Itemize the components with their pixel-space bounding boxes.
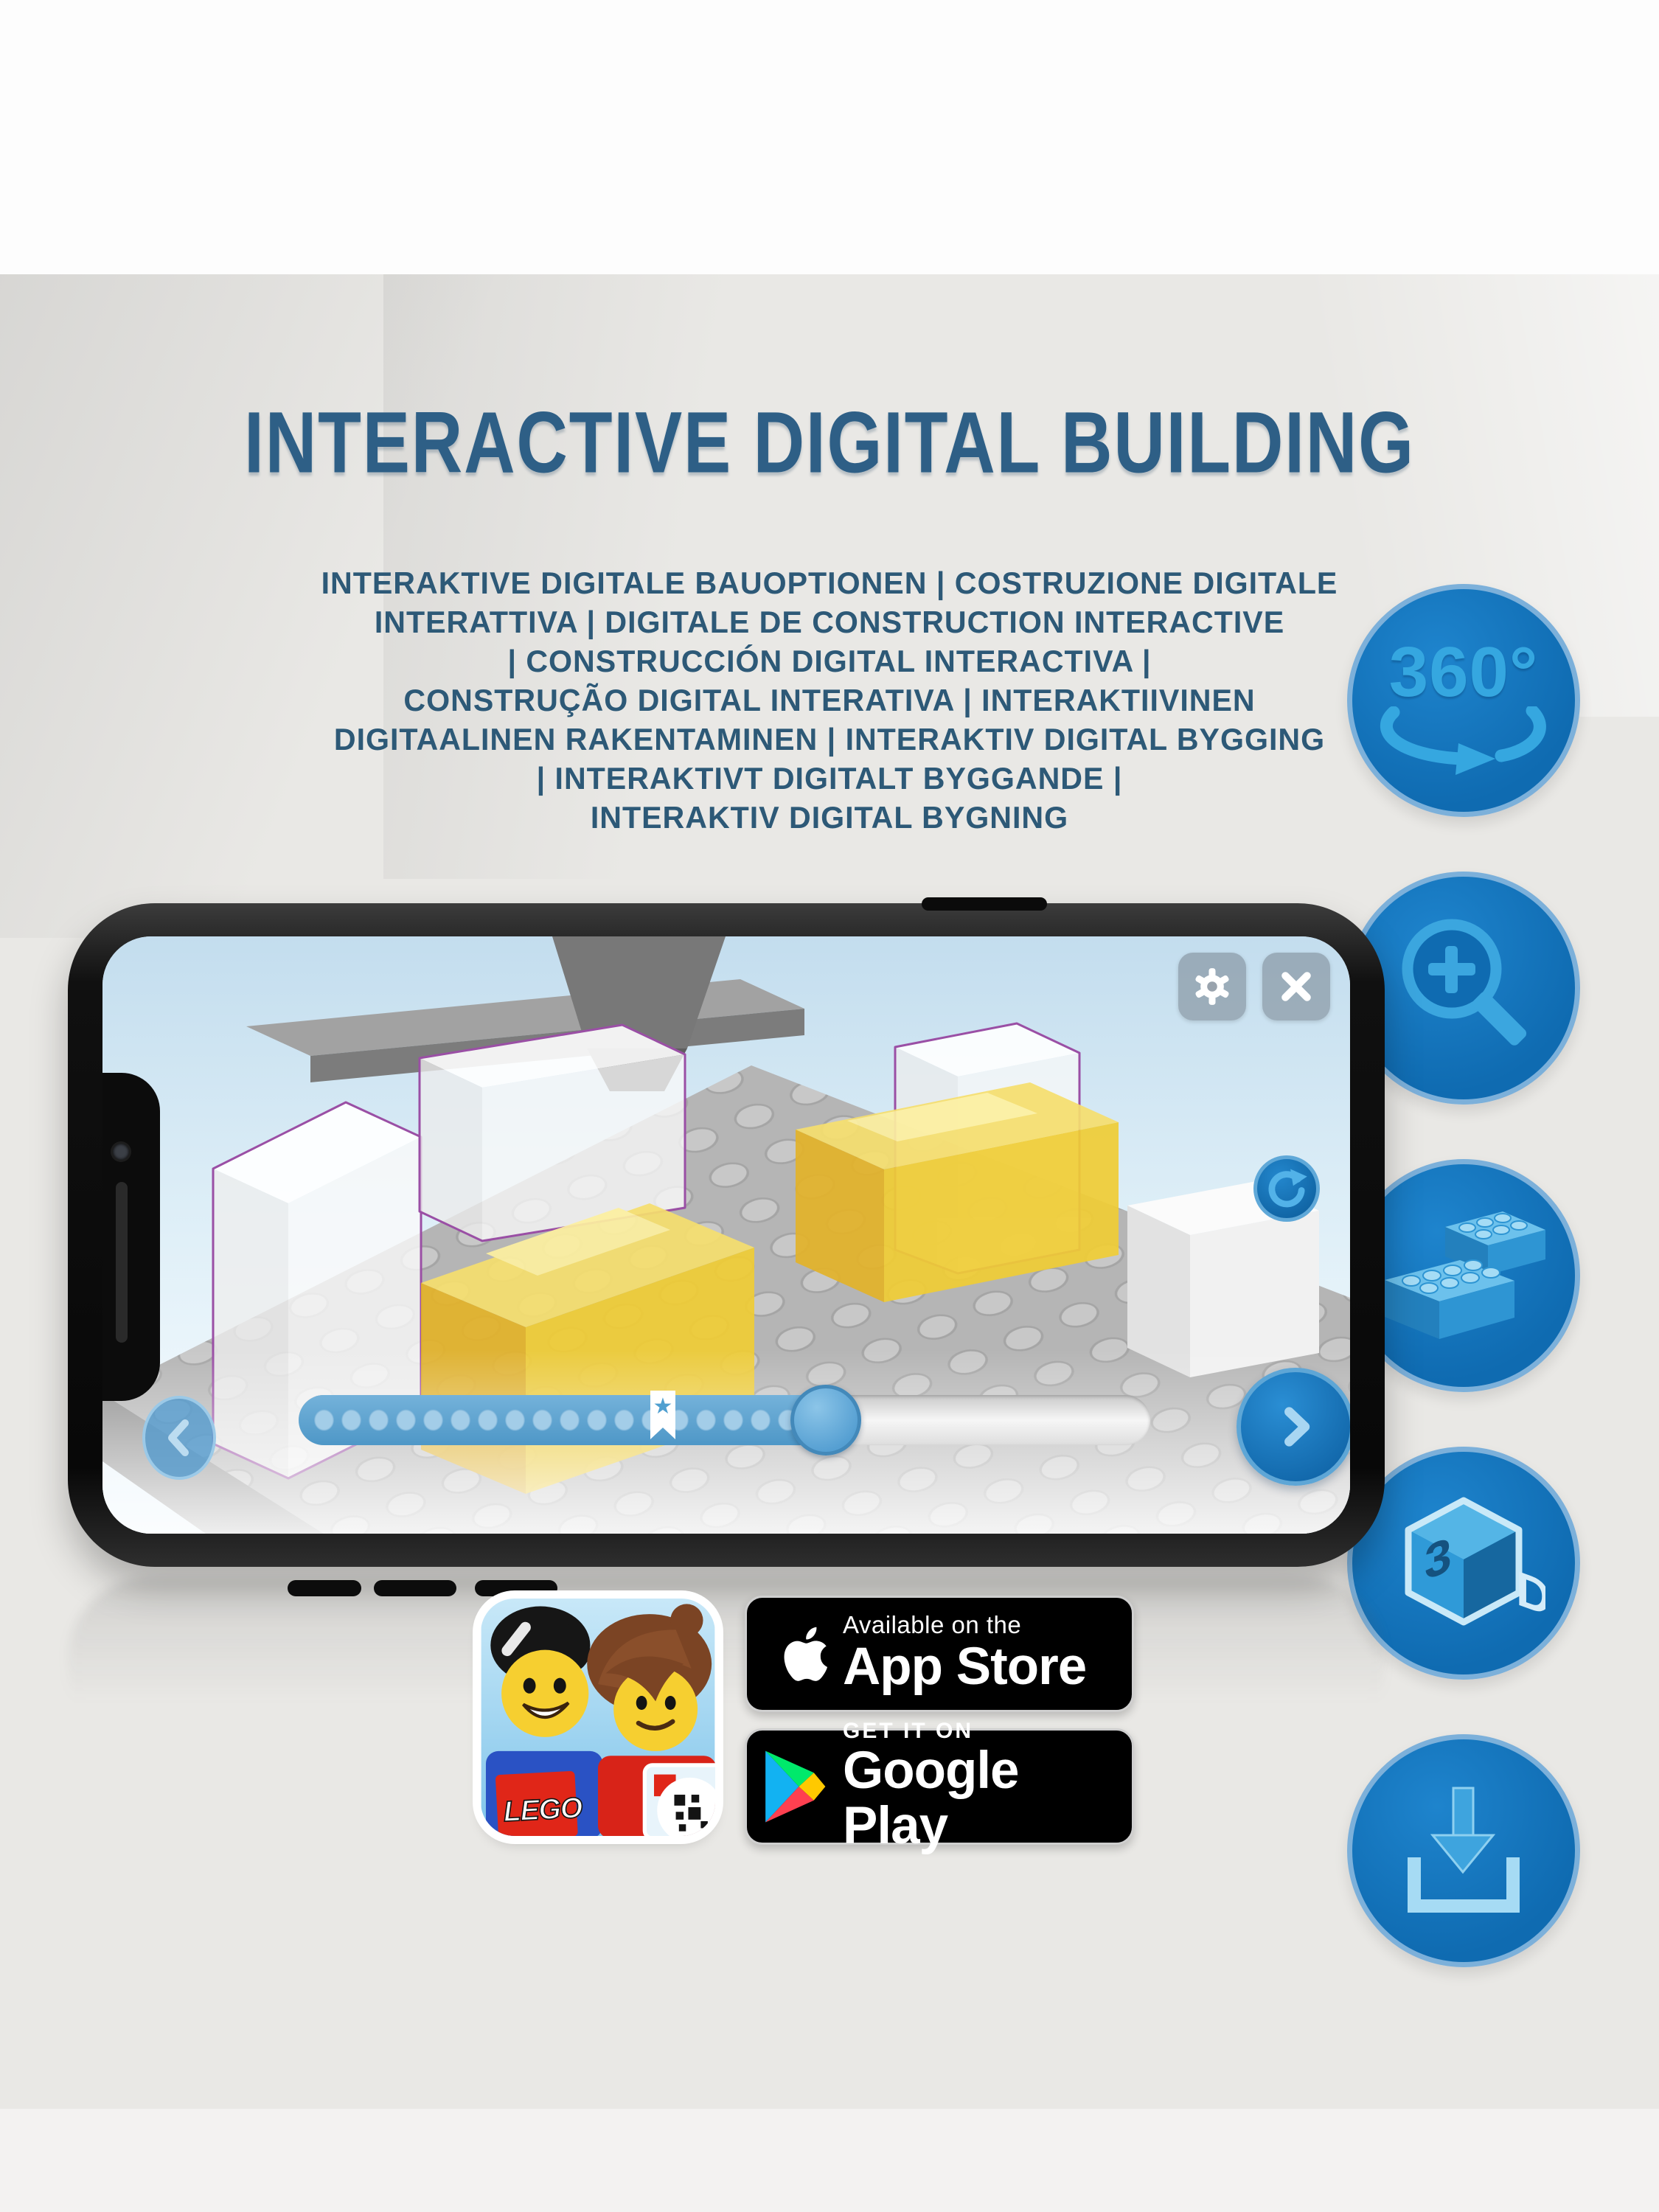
top-white-band <box>0 0 1659 274</box>
earpiece-speaker <box>116 1182 128 1343</box>
brick-icon <box>1373 1197 1554 1354</box>
rotate-icon <box>1265 1167 1308 1210</box>
phone-side-button <box>374 1580 456 1596</box>
cube-face-3: 3 <box>1425 1526 1452 1590</box>
app-store-name: App Store <box>843 1640 1124 1695</box>
poster-canvas: INTERACTIVE DIGITAL BUILDING INTERAKTIVE… <box>0 0 1659 2212</box>
lego-app-artwork: LEGO <box>481 1599 715 1836</box>
close-icon <box>1277 967 1315 1006</box>
progress-step-dots <box>310 1405 818 1435</box>
phone-side-button <box>288 1580 361 1596</box>
subtitle-line: INTERAKTIVE DIGITALE BAUOPTIONEN | COSTR… <box>17 563 1643 602</box>
rotate-view-button[interactable] <box>1253 1155 1320 1222</box>
close-button[interactable] <box>1262 953 1330 1020</box>
rotate-360-label: 360° <box>1352 632 1575 713</box>
phone-reflection <box>68 1578 1385 1755</box>
rotate-360-icon <box>1371 706 1556 784</box>
phone-notch <box>102 1073 160 1401</box>
star-icon: ★ <box>653 1394 673 1419</box>
phone-screen: ★ <box>102 936 1350 1534</box>
lego-logo: LEGO <box>503 1792 583 1829</box>
settings-button[interactable] <box>1178 953 1246 1020</box>
lego-app-icon[interactable]: LEGO <box>481 1599 715 1836</box>
progress-knob[interactable] <box>790 1385 861 1455</box>
previous-step-button[interactable] <box>142 1396 216 1480</box>
gear-icon <box>1193 967 1231 1006</box>
apple-icon <box>747 1613 843 1694</box>
feature-circle-download <box>1347 1734 1580 1967</box>
google-play-tagline: GET IT ON <box>843 1719 1124 1743</box>
app-store-badge[interactable]: Available on the App Store <box>745 1596 1134 1712</box>
progress-fill <box>299 1395 837 1445</box>
phone-side-button <box>475 1580 557 1596</box>
download-icon <box>1382 1769 1545 1933</box>
phone-frame: ★ <box>68 903 1385 1567</box>
front-camera-icon <box>113 1144 129 1160</box>
step-progress-bar[interactable]: ★ <box>299 1395 1150 1445</box>
zoom-in-icon <box>1384 908 1543 1068</box>
google-play-badge[interactable]: GET IT ON Google Play <box>745 1728 1134 1845</box>
subtitle-line: INTERAKTIV DIGITAL BYGNING <box>17 798 1643 837</box>
phone-power-button <box>922 897 1047 911</box>
app-store-tagline: Available on the <box>843 1613 1124 1638</box>
bottom-band <box>0 2109 1659 2212</box>
feature-circle-360: 360° <box>1347 584 1580 817</box>
chevron-left-icon <box>161 1417 197 1458</box>
next-step-button[interactable] <box>1237 1368 1350 1486</box>
google-play-name: Google Play <box>843 1744 1124 1854</box>
page-title: INTERACTIVE DIGITAL BUILDING <box>83 392 1576 493</box>
chevron-right-icon <box>1272 1403 1319 1450</box>
google-play-icon <box>747 1750 843 1823</box>
cube-face-d: D <box>1516 1560 1545 1627</box>
3d-cube-icon: 3 D <box>1382 1481 1545 1645</box>
